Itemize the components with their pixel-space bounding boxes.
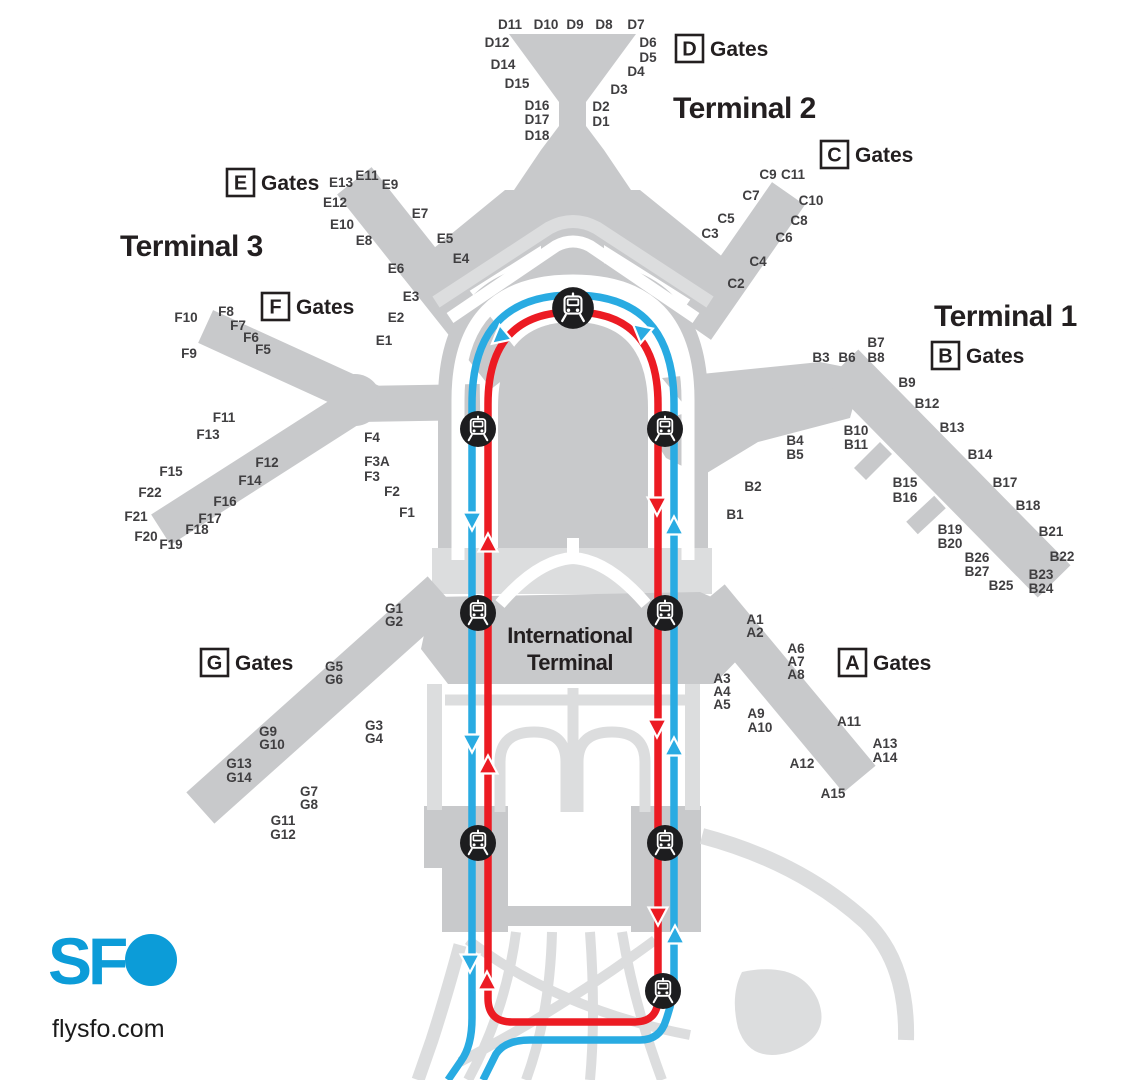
train-icon-light <box>667 613 670 616</box>
train-icon-light <box>567 308 570 311</box>
gate-label-F18: F18 <box>185 522 209 537</box>
gate-label-F10: F10 <box>174 310 197 325</box>
gate-label-E3: E3 <box>403 289 420 304</box>
gate-label-A8: A8 <box>787 667 805 682</box>
gate-label-E6: E6 <box>388 261 405 276</box>
gate-label-F15: F15 <box>159 464 183 479</box>
gate-label-B19: B19 <box>938 522 963 537</box>
gate-label-B17: B17 <box>993 475 1018 490</box>
gate-label-G14: G14 <box>226 770 252 785</box>
gate-label-F3: F3 <box>364 469 380 484</box>
gate-label-D7: D7 <box>627 17 644 32</box>
train-icon-light <box>576 308 579 311</box>
gate-label-C4: C4 <box>749 254 767 269</box>
gate-label-G10: G10 <box>259 737 285 752</box>
gate-label-F3A: F3A <box>364 454 390 469</box>
gate-label-A12: A12 <box>790 756 815 771</box>
gate-label-D4: D4 <box>627 64 645 79</box>
train-icon-light <box>473 429 476 432</box>
gate-label-G12: G12 <box>270 827 296 842</box>
gate-label-B6: B6 <box>838 350 856 365</box>
gate-label-E2: E2 <box>388 310 405 325</box>
gate-label-D10: D10 <box>534 17 559 32</box>
gate-label-G6: G6 <box>325 672 344 687</box>
map-svg: Terminal 2Terminal 3Terminal 1Internatio… <box>0 0 1131 1080</box>
gate-label-F8: F8 <box>218 304 234 319</box>
gate-label-B16: B16 <box>893 490 918 505</box>
terminal-heading: Terminal 3 <box>120 230 263 263</box>
b-stub-b15-b16 <box>912 502 940 528</box>
gate-label-F1: F1 <box>399 505 415 520</box>
sfo-logo-o-circle <box>125 934 177 986</box>
gate-group-letter: G <box>207 653 223 675</box>
airtrain-station <box>552 287 594 329</box>
airtrain-blue-arrow <box>665 517 684 535</box>
airtrain-station <box>647 595 683 631</box>
gate-label-E12: E12 <box>323 195 347 210</box>
gate-label-G8: G8 <box>300 797 319 812</box>
sfo-logo: SF <box>48 924 177 998</box>
airtrain-station <box>647 411 683 447</box>
gate-label-A2: A2 <box>746 625 763 640</box>
terminal-heading: Terminal 2 <box>673 92 816 125</box>
garage-right <box>631 806 701 932</box>
gate-label-B8: B8 <box>867 350 885 365</box>
gate-group-label-A: AGates <box>839 649 931 676</box>
gate-label-A14: A14 <box>873 750 898 765</box>
airtrain-red-arrow <box>479 534 498 552</box>
gate-label-B21: B21 <box>1039 524 1064 539</box>
gate-label-F22: F22 <box>138 485 161 500</box>
train-icon-light <box>480 429 483 432</box>
gate-label-E11: E11 <box>355 168 379 183</box>
sfo-logo-text: SF <box>48 924 126 998</box>
gate-label-G13: G13 <box>226 756 252 771</box>
gate-group-letter: B <box>938 346 952 368</box>
airtrain-blue-arrow <box>461 955 480 973</box>
train-icon-light <box>480 843 483 846</box>
gate-label-B7: B7 <box>867 335 884 350</box>
gate-label-B5: B5 <box>786 447 804 462</box>
gate-label-F5: F5 <box>255 342 271 357</box>
gate-label-A10: A10 <box>748 720 773 735</box>
gate-label-D9: D9 <box>566 17 583 32</box>
gate-label-F2: F2 <box>384 484 400 499</box>
sfo-airtrain-terminal-map: Terminal 2Terminal 3Terminal 1Internatio… <box>0 0 1131 1080</box>
gate-label-C7: C7 <box>742 188 759 203</box>
train-icon-light <box>473 843 476 846</box>
gate-label-B22: B22 <box>1050 549 1075 564</box>
road-left-column <box>427 684 442 810</box>
train-icon-light <box>660 429 663 432</box>
gate-label-B27: B27 <box>965 564 990 579</box>
gate-group-word: Gates <box>296 296 354 319</box>
gate-label-B14: B14 <box>968 447 993 462</box>
gate-label-E4: E4 <box>453 251 470 266</box>
gate-label-B4: B4 <box>786 433 804 448</box>
train-icon-light <box>658 991 661 994</box>
gate-label-E9: E9 <box>382 177 399 192</box>
terminal-heading: Terminal 1 <box>934 300 1077 333</box>
gate-label-B13: B13 <box>940 420 965 435</box>
gate-label-B26: B26 <box>965 550 990 565</box>
gate-label-B11: B11 <box>844 437 869 452</box>
gate-label-F20: F20 <box>134 529 157 544</box>
gate-label-D11: D11 <box>498 17 523 32</box>
gate-group-letter: E <box>234 173 247 195</box>
gate-group-word: Gates <box>710 38 768 61</box>
gate-label-C5: C5 <box>717 211 735 226</box>
gate-group-letter: C <box>827 145 841 167</box>
gate-label-C2: C2 <box>727 276 744 291</box>
gate-label-C10: C10 <box>799 193 824 208</box>
gate-label-C3: C3 <box>701 226 719 241</box>
gate-label-C9: C9 <box>759 167 776 182</box>
gate-label-F16: F16 <box>213 494 237 509</box>
gate-label-F4: F4 <box>364 430 380 445</box>
airtrain-station <box>647 825 683 861</box>
gate-group-label-B: BGates <box>932 342 1024 369</box>
train-icon-light <box>667 843 670 846</box>
gate-label-B2: B2 <box>744 479 761 494</box>
gate-label-D8: D8 <box>595 17 613 32</box>
gate-label-B9: B9 <box>898 375 915 390</box>
airtrain-station <box>460 825 496 861</box>
gate-label-D5: D5 <box>639 50 657 65</box>
gate-label-E8: E8 <box>356 233 373 248</box>
a-pier <box>722 614 846 763</box>
gate-label-A13: A13 <box>873 736 898 751</box>
gate-group-word: Gates <box>855 144 913 167</box>
gate-label-E7: E7 <box>412 206 429 221</box>
gate-label-E10: E10 <box>330 217 354 232</box>
gate-label-F19: F19 <box>159 537 182 552</box>
gate-label-D14: D14 <box>491 57 516 72</box>
gate-group-word: Gates <box>235 652 293 675</box>
gate-label-D3: D3 <box>610 82 628 97</box>
gate-label-G11: G11 <box>271 813 296 828</box>
gate-label-F14: F14 <box>238 473 262 488</box>
gate-label-E13: E13 <box>329 175 354 190</box>
train-icon-light <box>665 991 668 994</box>
gate-label-D17: D17 <box>525 112 550 127</box>
gate-label-C8: C8 <box>790 213 808 228</box>
gate-group-label-C: CGates <box>821 141 913 168</box>
gate-group-label-E: EGates <box>227 169 319 196</box>
train-icon-light <box>473 613 476 616</box>
gate-label-D18: D18 <box>525 128 550 143</box>
train-icon-light <box>480 613 483 616</box>
airtrain-blue-arrow <box>665 738 684 756</box>
garage-left-wing <box>424 806 444 868</box>
airtrain-red-arrow <box>648 498 667 516</box>
airtrain-red-arrow <box>478 972 497 990</box>
gate-label-B15: B15 <box>893 475 918 490</box>
airtrain-station <box>460 595 496 631</box>
gate-group-word: Gates <box>873 652 931 675</box>
garage-bar <box>505 906 633 926</box>
gate-label-D16: D16 <box>525 98 550 113</box>
gate-label-E1: E1 <box>376 333 393 348</box>
gate-label-F11: F11 <box>213 410 236 425</box>
gate-label-F21: F21 <box>124 509 148 524</box>
gate-label-D6: D6 <box>639 35 657 50</box>
airtrain-blue-arrow <box>463 735 482 753</box>
gate-group-word: Gates <box>261 172 319 195</box>
gate-label-E5: E5 <box>437 231 454 246</box>
gate-label-D2: D2 <box>592 99 609 114</box>
gate-label-B12: B12 <box>915 396 940 411</box>
gate-group-letter: D <box>682 39 696 61</box>
gate-label-D1: D1 <box>592 114 610 129</box>
gate-label-B18: B18 <box>1016 498 1041 513</box>
flysfo-url: flysfo.com <box>52 1015 165 1043</box>
gate-label-B1: B1 <box>726 507 744 522</box>
gate-label-C11: C11 <box>781 167 806 182</box>
gate-label-B20: B20 <box>938 536 963 551</box>
gate-group-label-G: GGates <box>201 649 293 676</box>
train-icon-light <box>660 613 663 616</box>
airtrain-red-arrow <box>648 720 667 738</box>
gate-group-label-D: DGates <box>676 35 768 62</box>
gate-label-B25: B25 <box>989 578 1014 593</box>
gate-label-G2: G2 <box>385 614 403 629</box>
gate-label-B24: B24 <box>1029 581 1054 596</box>
gate-label-D12: D12 <box>485 35 510 50</box>
gate-label-B10: B10 <box>844 423 869 438</box>
gate-label-F9: F9 <box>181 346 197 361</box>
gate-group-word: Gates <box>966 345 1024 368</box>
gate-label-B23: B23 <box>1029 567 1054 582</box>
gate-label-B3: B3 <box>812 350 830 365</box>
gate-group-letter: A <box>845 653 859 675</box>
gate-label-A9: A9 <box>747 706 764 721</box>
east-ramp-loop <box>735 969 822 1055</box>
gate-label-D15: D15 <box>505 76 530 91</box>
gate-label-A15: A15 <box>821 786 846 801</box>
train-icon-light <box>667 429 670 432</box>
gate-label-G4: G4 <box>365 731 384 746</box>
southwest-road <box>418 945 460 1080</box>
gate-label-F12: F12 <box>255 455 278 470</box>
gate-group-letter: F <box>269 297 281 319</box>
gate-label-C6: C6 <box>775 230 793 245</box>
train-icon-light <box>660 843 663 846</box>
airtrain-blue-arrow <box>463 513 482 531</box>
gate-label-F13: F13 <box>196 427 220 442</box>
airtrain-station <box>645 973 681 1009</box>
gate-label-A11: A11 <box>837 714 862 729</box>
gate-group-label-F: FGates <box>262 293 354 320</box>
airtrain-station <box>460 411 496 447</box>
gate-label-A5: A5 <box>713 697 731 712</box>
